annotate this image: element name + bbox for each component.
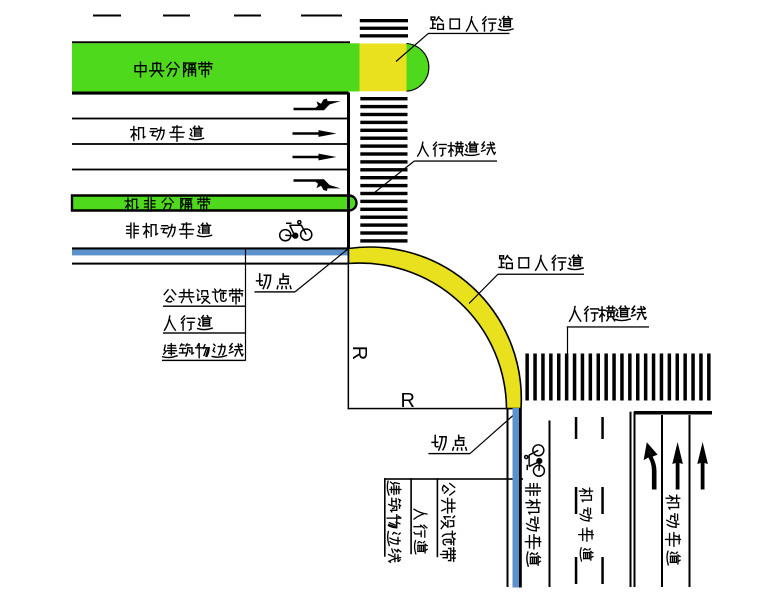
svg-text:R: R bbox=[348, 346, 370, 360]
svg-text:R: R bbox=[401, 390, 415, 412]
